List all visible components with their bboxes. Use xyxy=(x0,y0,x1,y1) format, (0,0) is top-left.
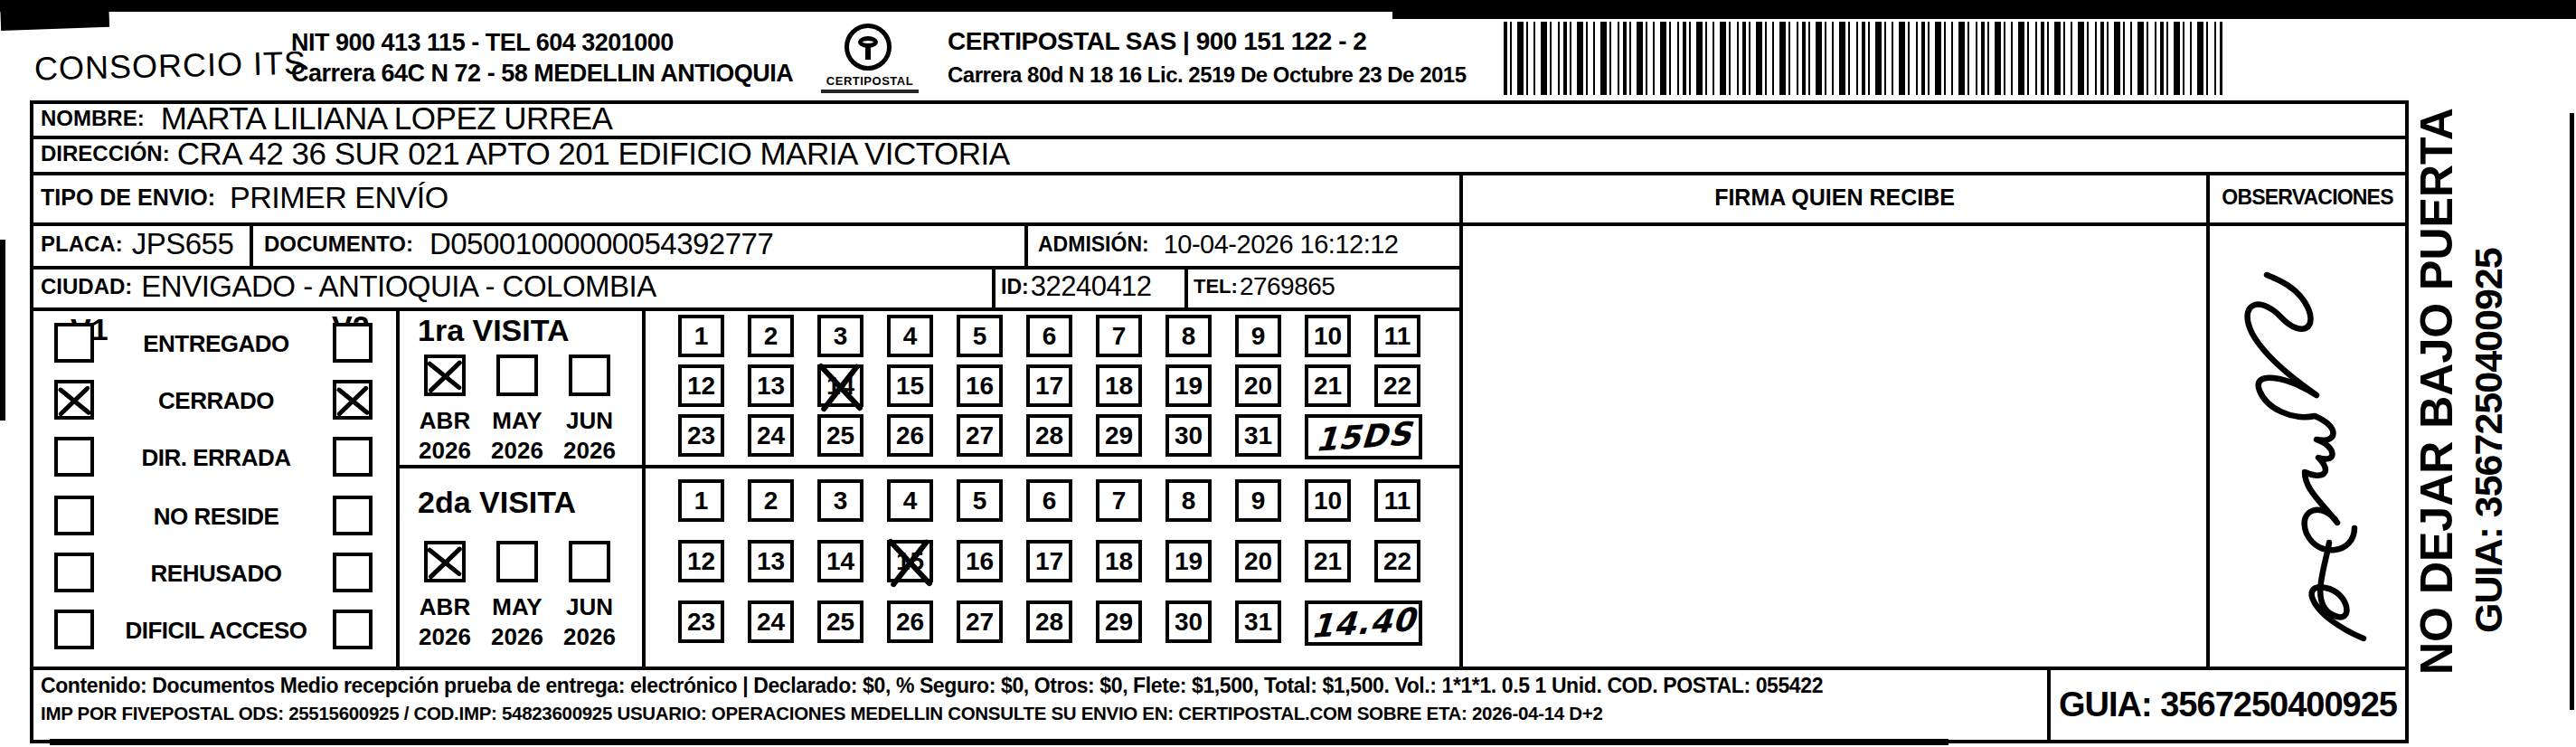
certipostal-info-block: CERTIPOSTAL SAS | 900 151 122 - 2 Carrer… xyxy=(948,27,1467,88)
day-number: 9 xyxy=(1251,487,1266,515)
month-label: ABR xyxy=(420,593,470,621)
v2-checkbox-2 xyxy=(333,380,373,420)
month-checkbox-abr xyxy=(424,541,466,582)
day-number: 2 xyxy=(764,487,778,515)
id-cell: ID: 32240412 xyxy=(1001,266,1182,307)
day-number: 22 xyxy=(1383,547,1411,576)
day-box-25: 25 xyxy=(817,600,863,643)
v2-checkbox-5 xyxy=(333,553,373,592)
day-box-24: 24 xyxy=(748,600,794,643)
status-label: DIFICIL ACCESO xyxy=(98,616,335,644)
day-number: 31 xyxy=(1244,608,1272,637)
scan-artifact-top-blob xyxy=(0,0,109,31)
day-box-30: 30 xyxy=(1165,600,1212,643)
handwritten-note-box: 15DS xyxy=(1305,414,1422,459)
day-box-31: 31 xyxy=(1235,414,1281,457)
day-box-15: 15 xyxy=(887,364,933,407)
month-label: JUN xyxy=(566,407,613,435)
visit-1-months: ABR2026MAY2026JUN2026 xyxy=(409,355,626,465)
sender-info-block: NIT 900 413 115 - TEL 604 3201000 Carrer… xyxy=(291,27,793,89)
day-number: 24 xyxy=(757,608,785,637)
tel-value: 2769865 xyxy=(1240,272,1335,301)
day-box-23: 23 xyxy=(678,600,724,643)
day-box-5: 5 xyxy=(957,479,1003,522)
admision-label: ADMISIÓN: xyxy=(1038,232,1149,257)
day-number: 30 xyxy=(1175,608,1203,637)
day-box-7: 7 xyxy=(1096,479,1142,522)
day-number: 12 xyxy=(687,547,715,576)
month-may: MAY2026 xyxy=(481,541,553,651)
v2-checkbox-4 xyxy=(333,496,373,535)
month-label: MAY xyxy=(492,407,542,435)
day-number: 7 xyxy=(1112,322,1127,351)
day-box-17: 17 xyxy=(1026,540,1072,582)
certipostal-logo-stem xyxy=(865,46,871,60)
month-abr: ABR2026 xyxy=(409,541,481,651)
v1-checkbox-4 xyxy=(54,496,94,535)
observaciones-header: OBSERVACIONES xyxy=(2210,172,2405,222)
month-abr: ABR2026 xyxy=(409,355,481,465)
day-number: 23 xyxy=(687,608,715,637)
v2-checkbox-6 xyxy=(333,610,373,649)
day-number: 17 xyxy=(1035,547,1063,576)
day-number: 21 xyxy=(1314,547,1342,576)
day-box-17: 17 xyxy=(1026,364,1072,407)
day-number: 2 xyxy=(764,322,778,351)
day-box-9: 9 xyxy=(1235,315,1281,357)
day-number: 13 xyxy=(757,372,785,401)
day-number: 9 xyxy=(1251,322,1266,351)
month-jun: JUN2026 xyxy=(553,541,626,651)
day-number: 20 xyxy=(1244,547,1272,576)
id-label: ID: xyxy=(1001,275,1029,299)
day-box-23: 23 xyxy=(678,414,724,457)
day-box-1: 1 xyxy=(678,479,724,522)
day-number: 11 xyxy=(1384,487,1411,515)
tipo-envio-value: PRIMER ENVÍO xyxy=(230,180,448,215)
ciudad-cell: CIUDAD: ENVIGADO - ANTIOQUIA - COLOMBIA xyxy=(41,266,981,307)
day-box-27: 27 xyxy=(957,600,1003,643)
footer-import-line: IMP POR FIVEPOSTAL ODS: 25515600925 / CO… xyxy=(41,703,2048,724)
day-number: 15 xyxy=(896,547,924,576)
side-vertical-text: NO DEJAR BAJO PUERTA GUIA: 3567250400925 xyxy=(2411,116,2575,675)
visit-2-day-grid: 1234567891011121314151617181920212223242… xyxy=(678,479,1447,651)
v1-checkbox-3 xyxy=(54,437,94,477)
month-checkbox-abr xyxy=(424,355,466,396)
month-label: JUN xyxy=(566,593,613,621)
no-dejar-bajo-puerta-text: NO DEJAR BAJO PUERTA xyxy=(2411,116,2463,675)
month-checkbox-may xyxy=(496,541,538,582)
divider xyxy=(642,307,646,667)
day-number: 28 xyxy=(1035,608,1063,637)
day-number: 26 xyxy=(896,421,924,450)
day-number: 25 xyxy=(826,608,854,637)
day-number: 1 xyxy=(694,487,709,515)
day-box-22: 22 xyxy=(1374,364,1420,407)
day-box-19: 19 xyxy=(1165,540,1212,582)
day-number: 27 xyxy=(966,608,994,637)
day-number: 31 xyxy=(1244,421,1272,450)
direccion-value: CRA 42 36 SUR 021 APTO 201 EDIFICIO MARI… xyxy=(177,136,1010,172)
day-number: 18 xyxy=(1105,372,1133,401)
handwritten-note-text: 14.40 xyxy=(1310,601,1417,645)
placa-label: PLACA: xyxy=(41,232,123,257)
handwritten-note-box: 14.40 xyxy=(1305,600,1422,646)
sender-nit-line: NIT 900 413 115 - TEL 604 3201000 xyxy=(291,27,793,58)
day-number: 4 xyxy=(903,322,918,351)
status-label: ENTREGADO xyxy=(98,329,335,357)
day-number: 8 xyxy=(1182,322,1196,351)
v1-checkbox-1 xyxy=(54,323,94,363)
day-number: 27 xyxy=(966,421,994,450)
day-number: 26 xyxy=(896,608,924,637)
day-box-2: 2 xyxy=(748,315,794,357)
guia-number-box: GUIA: 3567250400925 xyxy=(2051,670,2405,740)
day-box-22: 22 xyxy=(1374,540,1420,582)
day-number: 16 xyxy=(966,547,994,576)
direccion-label: DIRECCIÓN: xyxy=(41,141,170,166)
day-box-8: 8 xyxy=(1165,315,1212,357)
tipo-envio-row: TIPO DE ENVIO: PRIMER ENVÍO xyxy=(41,172,1397,222)
certipostal-license-line: Carrera 80d N 18 16 Lic. 2519 De Octubre… xyxy=(948,62,1467,88)
day-box-29: 29 xyxy=(1096,600,1142,643)
day-number: 19 xyxy=(1175,547,1203,576)
day-number: 16 xyxy=(966,372,994,401)
day-number: 18 xyxy=(1105,547,1133,576)
status-label: CERRADO xyxy=(98,386,335,414)
day-number: 5 xyxy=(973,322,987,351)
day-box-13: 13 xyxy=(748,364,794,407)
month-label: MAY xyxy=(492,593,542,621)
day-box-12: 12 xyxy=(678,364,724,407)
day-box-15: 15 xyxy=(887,540,933,582)
certipostal-logo-tagline xyxy=(821,90,919,93)
scanned-delivery-form: CONSORCIO ITS NIT 900 413 115 - TEL 604 … xyxy=(0,0,2576,747)
day-number: 5 xyxy=(973,487,987,515)
day-number: 21 xyxy=(1314,372,1342,401)
day-box-18: 18 xyxy=(1096,364,1142,407)
v1-checkbox-6 xyxy=(54,610,94,649)
day-box-4: 4 xyxy=(887,315,933,357)
visit-2-months: ABR2026MAY2026JUN2026 xyxy=(409,541,626,651)
day-number: 24 xyxy=(757,421,785,450)
ciudad-label: CIUDAD: xyxy=(41,274,132,299)
footer-content-line: Contenido: Documentos Medio recepción pr… xyxy=(41,674,2048,698)
day-box-14: 14 xyxy=(817,364,863,407)
firma-header: FIRMA QUIEN RECIBE xyxy=(1463,172,2206,222)
day-box-28: 28 xyxy=(1026,414,1072,457)
day-number: 25 xyxy=(826,421,854,450)
month-year: 2026 xyxy=(563,623,616,651)
day-number: 11 xyxy=(1384,322,1411,351)
day-box-29: 29 xyxy=(1096,414,1142,457)
sender-address-line: Carrera 64C N 72 - 58 MEDELLIN ANTIOQUIA xyxy=(291,58,793,89)
day-number: 20 xyxy=(1244,372,1272,401)
day-box-21: 21 xyxy=(1305,540,1351,582)
handwritten-note-text: 15DS xyxy=(1314,415,1413,459)
ciudad-value: ENVIGADO - ANTIOQUIA - COLOMBIA xyxy=(141,269,656,304)
status-panel: V1 V2 ENTREGADOCERRADODIR. ERRADANO RESI… xyxy=(30,307,396,667)
day-box-3: 3 xyxy=(817,315,863,357)
day-box-28: 28 xyxy=(1026,600,1072,643)
day-box-27: 27 xyxy=(957,414,1003,457)
status-label: REHUSADO xyxy=(98,559,335,587)
placa-cell: PLACA: JPS655 xyxy=(41,222,244,266)
day-number: 4 xyxy=(903,487,918,515)
day-number: 23 xyxy=(687,421,715,450)
divider xyxy=(1184,266,1188,307)
day-box-20: 20 xyxy=(1235,540,1281,582)
nombre-row: NOMBRE: MARTA LILIANA LOPEZ URREA xyxy=(41,100,2030,136)
day-box-6: 6 xyxy=(1026,315,1072,357)
status-row-dificil-acceso: DIFICIL ACCESO xyxy=(30,610,396,650)
divider xyxy=(1459,172,1463,670)
month-jun: JUN2026 xyxy=(553,355,626,465)
divider xyxy=(992,266,995,307)
day-box-12: 12 xyxy=(678,540,724,582)
day-box-13: 13 xyxy=(748,540,794,582)
day-box-20: 20 xyxy=(1235,364,1281,407)
tel-cell: TEL: 2769865 xyxy=(1194,266,1456,307)
day-number: 1 xyxy=(694,322,709,351)
recipient-signature xyxy=(2217,232,2400,655)
month-year: 2026 xyxy=(419,623,471,651)
day-number: 3 xyxy=(834,322,848,351)
day-number: 13 xyxy=(757,547,785,576)
day-box-18: 18 xyxy=(1096,540,1142,582)
status-row-dir-errada: DIR. ERRADA xyxy=(30,437,396,478)
shipment-barcode xyxy=(1504,22,2222,95)
day-number: 3 xyxy=(834,487,848,515)
status-label: NO RESIDE xyxy=(98,502,335,530)
day-number: 19 xyxy=(1175,372,1203,401)
day-box-16: 16 xyxy=(957,364,1003,407)
certipostal-logo-icon xyxy=(845,24,892,71)
status-label: DIR. ERRADA xyxy=(98,443,335,471)
day-number: 28 xyxy=(1035,421,1063,450)
day-box-8: 8 xyxy=(1165,479,1212,522)
day-box-2: 2 xyxy=(748,479,794,522)
day-box-10: 10 xyxy=(1305,315,1351,357)
day-box-9: 9 xyxy=(1235,479,1281,522)
day-number: 8 xyxy=(1182,487,1196,515)
nombre-value: MARTA LILIANA LOPEZ URREA xyxy=(161,100,613,137)
footer-content-block: Contenido: Documentos Medio recepción pr… xyxy=(33,668,2048,724)
day-box-26: 26 xyxy=(887,414,933,457)
month-year: 2026 xyxy=(563,437,616,465)
day-box-1: 1 xyxy=(678,315,724,357)
day-number: 10 xyxy=(1314,487,1342,515)
nombre-label: NOMBRE: xyxy=(41,106,145,131)
day-box-3: 3 xyxy=(817,479,863,522)
placa-value: JPS655 xyxy=(132,227,234,261)
visit-1-day-grid: 1234567891011121314151617181920212223242… xyxy=(678,315,1447,464)
day-box-6: 6 xyxy=(1026,479,1072,522)
v2-checkbox-3 xyxy=(333,437,373,477)
month-year: 2026 xyxy=(491,623,543,651)
day-box-31: 31 xyxy=(1235,600,1281,643)
v1-checkbox-5 xyxy=(54,553,94,592)
status-row-no-reside: NO RESIDE xyxy=(30,496,396,536)
certipostal-company-line: CERTIPOSTAL SAS | 900 151 122 - 2 xyxy=(948,27,1467,56)
day-box-16: 16 xyxy=(957,540,1003,582)
month-year: 2026 xyxy=(419,437,471,465)
month-may: MAY2026 xyxy=(481,355,553,465)
visit-1-panel: 1ra VISITA ABR2026MAY2026JUN2026 xyxy=(396,307,642,465)
day-box-25: 25 xyxy=(817,414,863,457)
direccion-row: DIRECCIÓN: CRA 42 36 SUR 021 APTO 201 ED… xyxy=(41,136,2030,172)
divider xyxy=(250,222,253,266)
day-number: 30 xyxy=(1175,421,1203,450)
day-box-11: 11 xyxy=(1374,479,1420,522)
day-number: 10 xyxy=(1314,322,1342,351)
day-number: 6 xyxy=(1043,322,1057,351)
day-box-7: 7 xyxy=(1096,315,1142,357)
certipostal-logo-text: CERTIPOSTAL xyxy=(812,74,928,88)
day-box-14: 14 xyxy=(817,540,863,582)
sender-company-name: CONSORCIO ITS xyxy=(34,44,307,89)
day-number: 17 xyxy=(1035,372,1063,401)
v1-checkbox-2 xyxy=(54,380,94,420)
day-box-19: 19 xyxy=(1165,364,1212,407)
scan-artifact-top-bar-right xyxy=(1392,0,2576,19)
documento-value: D05001000000054392777 xyxy=(429,227,773,261)
id-value: 32240412 xyxy=(1031,270,1152,303)
scan-artifact-left-edge xyxy=(0,240,5,421)
day-box-10: 10 xyxy=(1305,479,1351,522)
visit-2-title: 2da VISITA xyxy=(418,485,576,520)
day-box-21: 21 xyxy=(1305,364,1351,407)
day-number: 14 xyxy=(826,372,854,401)
day-number: 22 xyxy=(1383,372,1411,401)
day-number: 6 xyxy=(1043,487,1057,515)
month-checkbox-jun xyxy=(569,541,610,582)
day-number: 29 xyxy=(1105,421,1133,450)
day-box-26: 26 xyxy=(887,600,933,643)
documento-cell: DOCUMENTO: D05001000000054392777 xyxy=(264,222,1019,266)
status-row-rehusado: REHUSADO xyxy=(30,553,396,593)
month-year: 2026 xyxy=(491,437,543,465)
admision-value: 10-04-2026 16:12:12 xyxy=(1164,230,1399,260)
day-number: 29 xyxy=(1105,608,1133,637)
tipo-envio-label: TIPO DE ENVIO: xyxy=(41,184,215,211)
status-row-entregado: ENTREGADO xyxy=(30,323,396,364)
divider xyxy=(2206,172,2210,670)
visit-1-title: 1ra VISITA xyxy=(418,313,570,348)
admision-cell: ADMISIÓN: 10-04-2026 16:12:12 xyxy=(1038,222,1458,266)
day-number: 15 xyxy=(896,372,924,401)
day-number: 14 xyxy=(826,547,854,576)
day-box-4: 4 xyxy=(887,479,933,522)
day-number: 7 xyxy=(1112,487,1127,515)
day-box-5: 5 xyxy=(957,315,1003,357)
documento-label: DOCUMENTO: xyxy=(264,232,413,257)
status-row-cerrado: CERRADO xyxy=(30,380,396,421)
divider xyxy=(1024,222,1028,266)
month-checkbox-jun xyxy=(569,355,610,396)
day-box-24: 24 xyxy=(748,414,794,457)
day-number: 12 xyxy=(687,372,715,401)
month-label: ABR xyxy=(420,407,470,435)
tel-label: TEL: xyxy=(1194,275,1238,298)
v2-checkbox-1 xyxy=(333,323,373,363)
visit-2-panel: 2da VISITA ABR2026MAY2026JUN2026 xyxy=(396,465,642,667)
month-checkbox-may xyxy=(496,355,538,396)
day-box-30: 30 xyxy=(1165,414,1212,457)
side-guia-number: GUIA: 3567250400925 xyxy=(2467,116,2511,675)
day-box-11: 11 xyxy=(1374,315,1420,357)
